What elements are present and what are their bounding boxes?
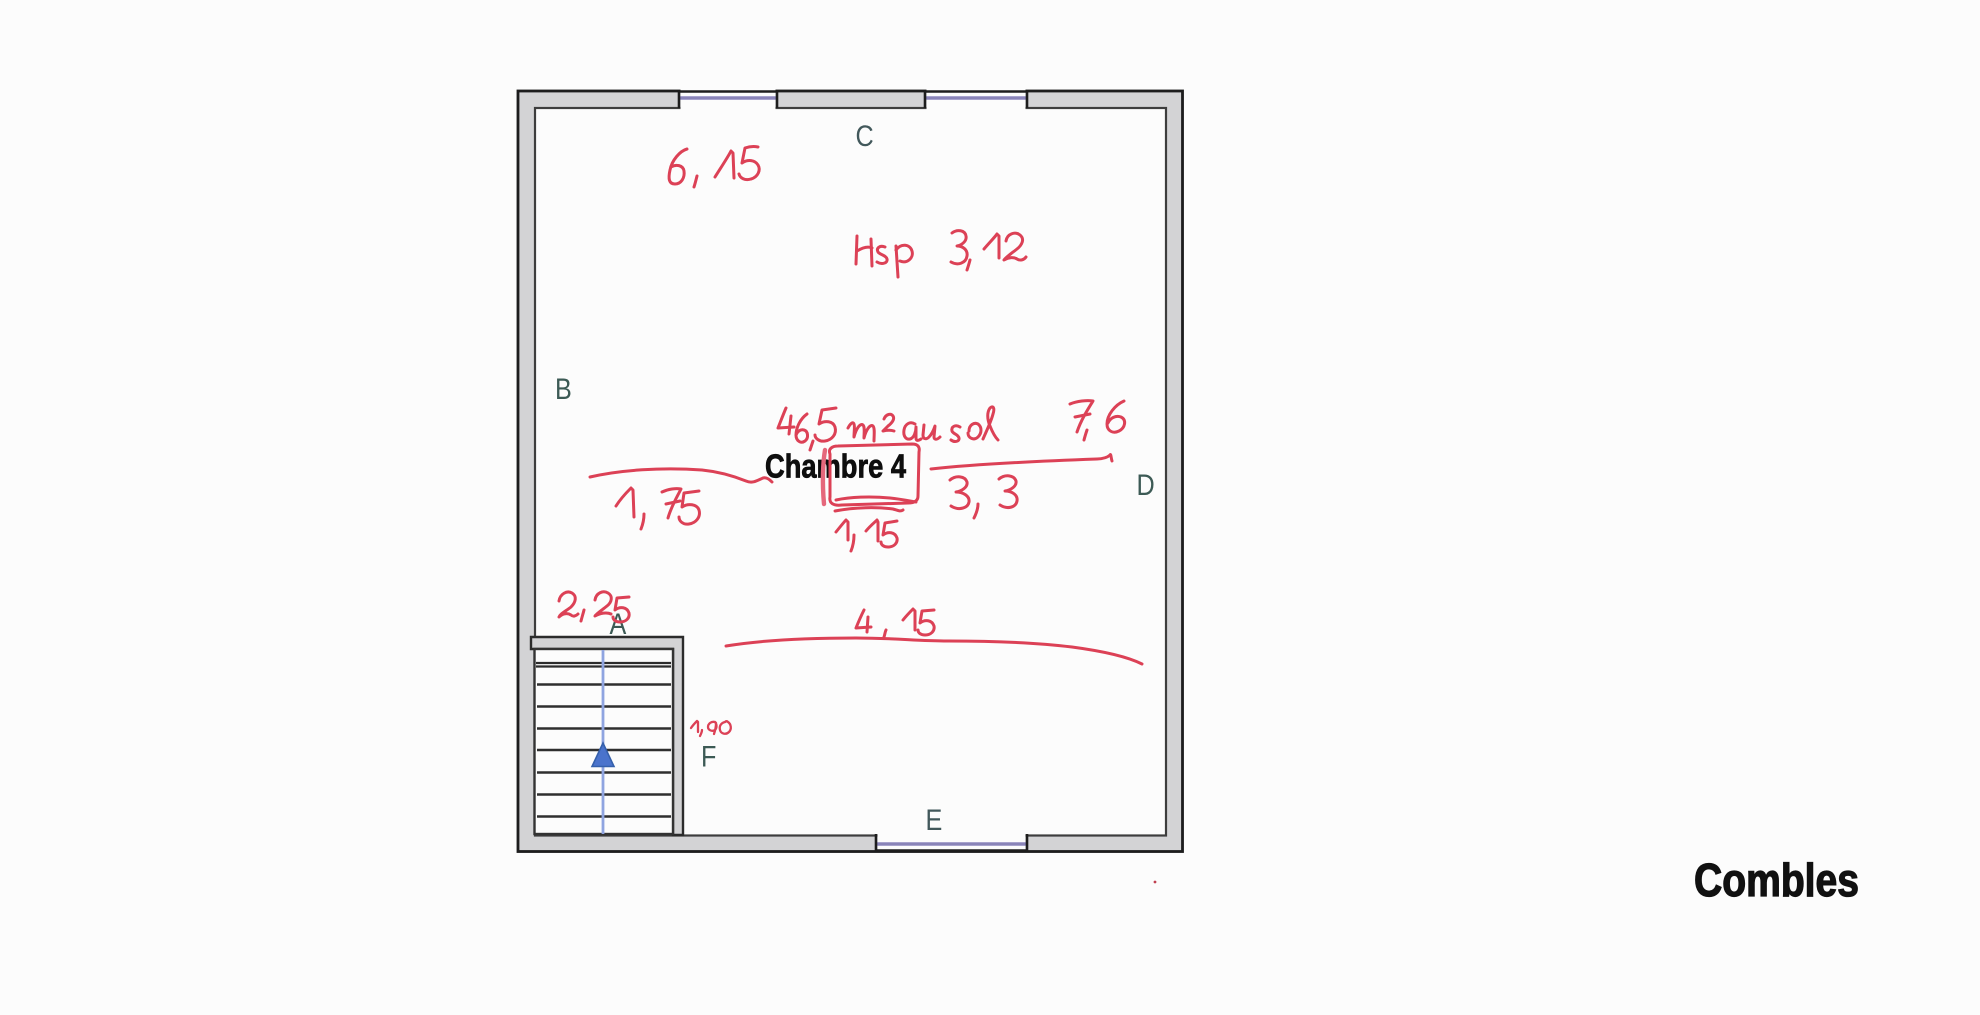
svg-text:Combles: Combles — [1694, 854, 1859, 906]
svg-text:D: D — [1137, 468, 1155, 502]
svg-text:F: F — [701, 739, 716, 773]
svg-text:B: B — [555, 372, 572, 406]
svg-text:C: C — [856, 119, 874, 153]
svg-text:A: A — [610, 607, 627, 641]
svg-text:E: E — [926, 803, 943, 837]
svg-text:Chambre 4: Chambre 4 — [765, 449, 906, 486]
